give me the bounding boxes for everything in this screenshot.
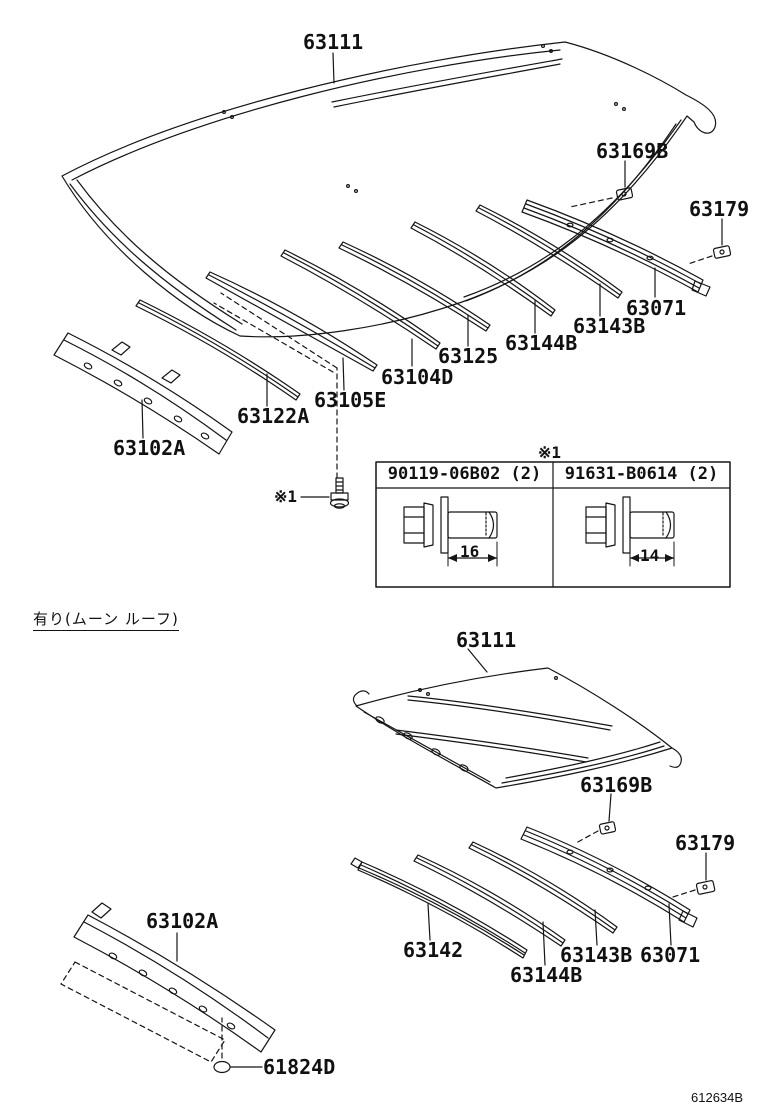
table-part-number-1: 90119-06B02 (2) (377, 466, 552, 483)
part-label-front-sub-top: 63105E (314, 390, 386, 410)
part-label-plug: 61824D (263, 1057, 335, 1077)
part-label-bow3-top: 63144B (505, 333, 577, 353)
part-label-header-panel-bottom: 63102A (146, 911, 218, 931)
part-label-clip-top: 63169B (596, 141, 668, 161)
part-label-header-panel-top: 63102A (113, 438, 185, 458)
leader-lines-bottom (177, 649, 706, 1067)
grommet-drawing (214, 1062, 230, 1073)
part-label-bow1-bottom: 63142 (403, 940, 463, 960)
roof-panel-bottom-drawing (353, 668, 681, 788)
dimension-label-1: 16 (460, 544, 479, 560)
part-label-bow4-top: 63143B (573, 316, 645, 336)
part-label-retainer-bottom: 63179 (675, 833, 735, 853)
dimension-label-2: 14 (640, 548, 659, 564)
ref-marker-bolt: ※1 (274, 489, 297, 505)
bolt-drawing (331, 478, 349, 508)
part-label-retainer-top: 63179 (689, 199, 749, 219)
ref-marker-table: ※1 (538, 445, 561, 461)
moonroof-section-note: 有り(ムーン ルーフ) (33, 612, 179, 631)
part-label-clip-bottom: 63169B (580, 775, 652, 795)
clip-63179-top-drawing (713, 245, 731, 258)
parts-diagram-page: 63111 63169B 63179 63071 63143B 63144B 6… (0, 0, 760, 1112)
part-label-roof-panel-bottom: 63111 (456, 630, 516, 650)
drawing-number: 612634B (691, 1091, 743, 1104)
part-label-bow4-bottom: 63071 (640, 945, 700, 965)
part-label-bow1-top: 63104D (381, 367, 453, 387)
table-part-number-2: 91631-B0614 (2) (554, 466, 729, 483)
part-label-roof-panel-top: 63111 (303, 32, 363, 52)
part-label-bow2-top: 63125 (438, 346, 498, 366)
part-label-front-reinf-top: 63122A (237, 406, 309, 426)
part-label-bow3-bottom: 63143B (560, 945, 632, 965)
part-label-bow2-bottom: 63144B (510, 965, 582, 985)
